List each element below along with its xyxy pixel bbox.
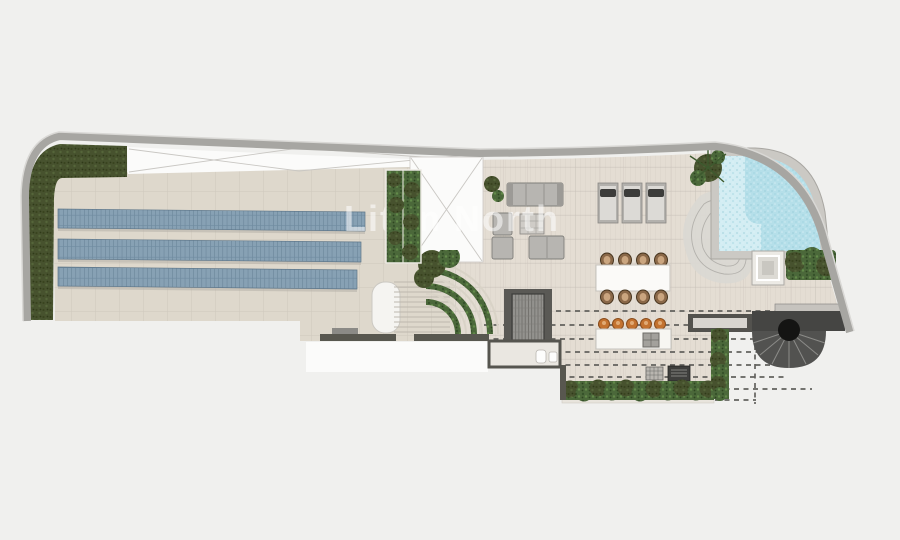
- sun-lounger: [622, 183, 642, 223]
- barbecue-grill: [668, 366, 690, 381]
- bench: [332, 328, 358, 334]
- sun-loungers: [598, 183, 666, 223]
- restroom-core: [489, 341, 560, 367]
- armchair: [492, 237, 513, 259]
- elevator-shaft: [512, 294, 544, 340]
- solar-panel-array: [58, 209, 365, 292]
- stair-center-void: [778, 319, 800, 341]
- lower-level-area: [306, 342, 488, 372]
- dining-table: [596, 265, 670, 291]
- rooftop-floor-plan: Liton North: [0, 0, 900, 540]
- grill-station: [646, 366, 690, 381]
- bar-area: [596, 319, 671, 350]
- grill-grate: [646, 367, 663, 380]
- bar-counter: [596, 329, 671, 349]
- floor-plan-canvas: Liton North: [0, 0, 900, 540]
- solar-panel-row-3: [58, 267, 357, 289]
- watermark: Liton North: [344, 198, 560, 239]
- vertical-garden-wall: [386, 170, 421, 263]
- spa-square: [752, 251, 784, 285]
- solar-panel-row-1: [58, 209, 365, 231]
- potted-plant: [484, 176, 500, 192]
- sofa-two-seat: [529, 236, 564, 259]
- toilet-fixture: [536, 350, 546, 363]
- sink-fixture: [549, 352, 557, 362]
- solar-panel-row-2: [58, 239, 361, 262]
- bar-stools: [599, 319, 666, 330]
- elevator-core: [504, 289, 552, 345]
- stair-top-step: [775, 304, 845, 312]
- sun-lounger: [646, 183, 666, 223]
- sun-lounger: [598, 183, 618, 223]
